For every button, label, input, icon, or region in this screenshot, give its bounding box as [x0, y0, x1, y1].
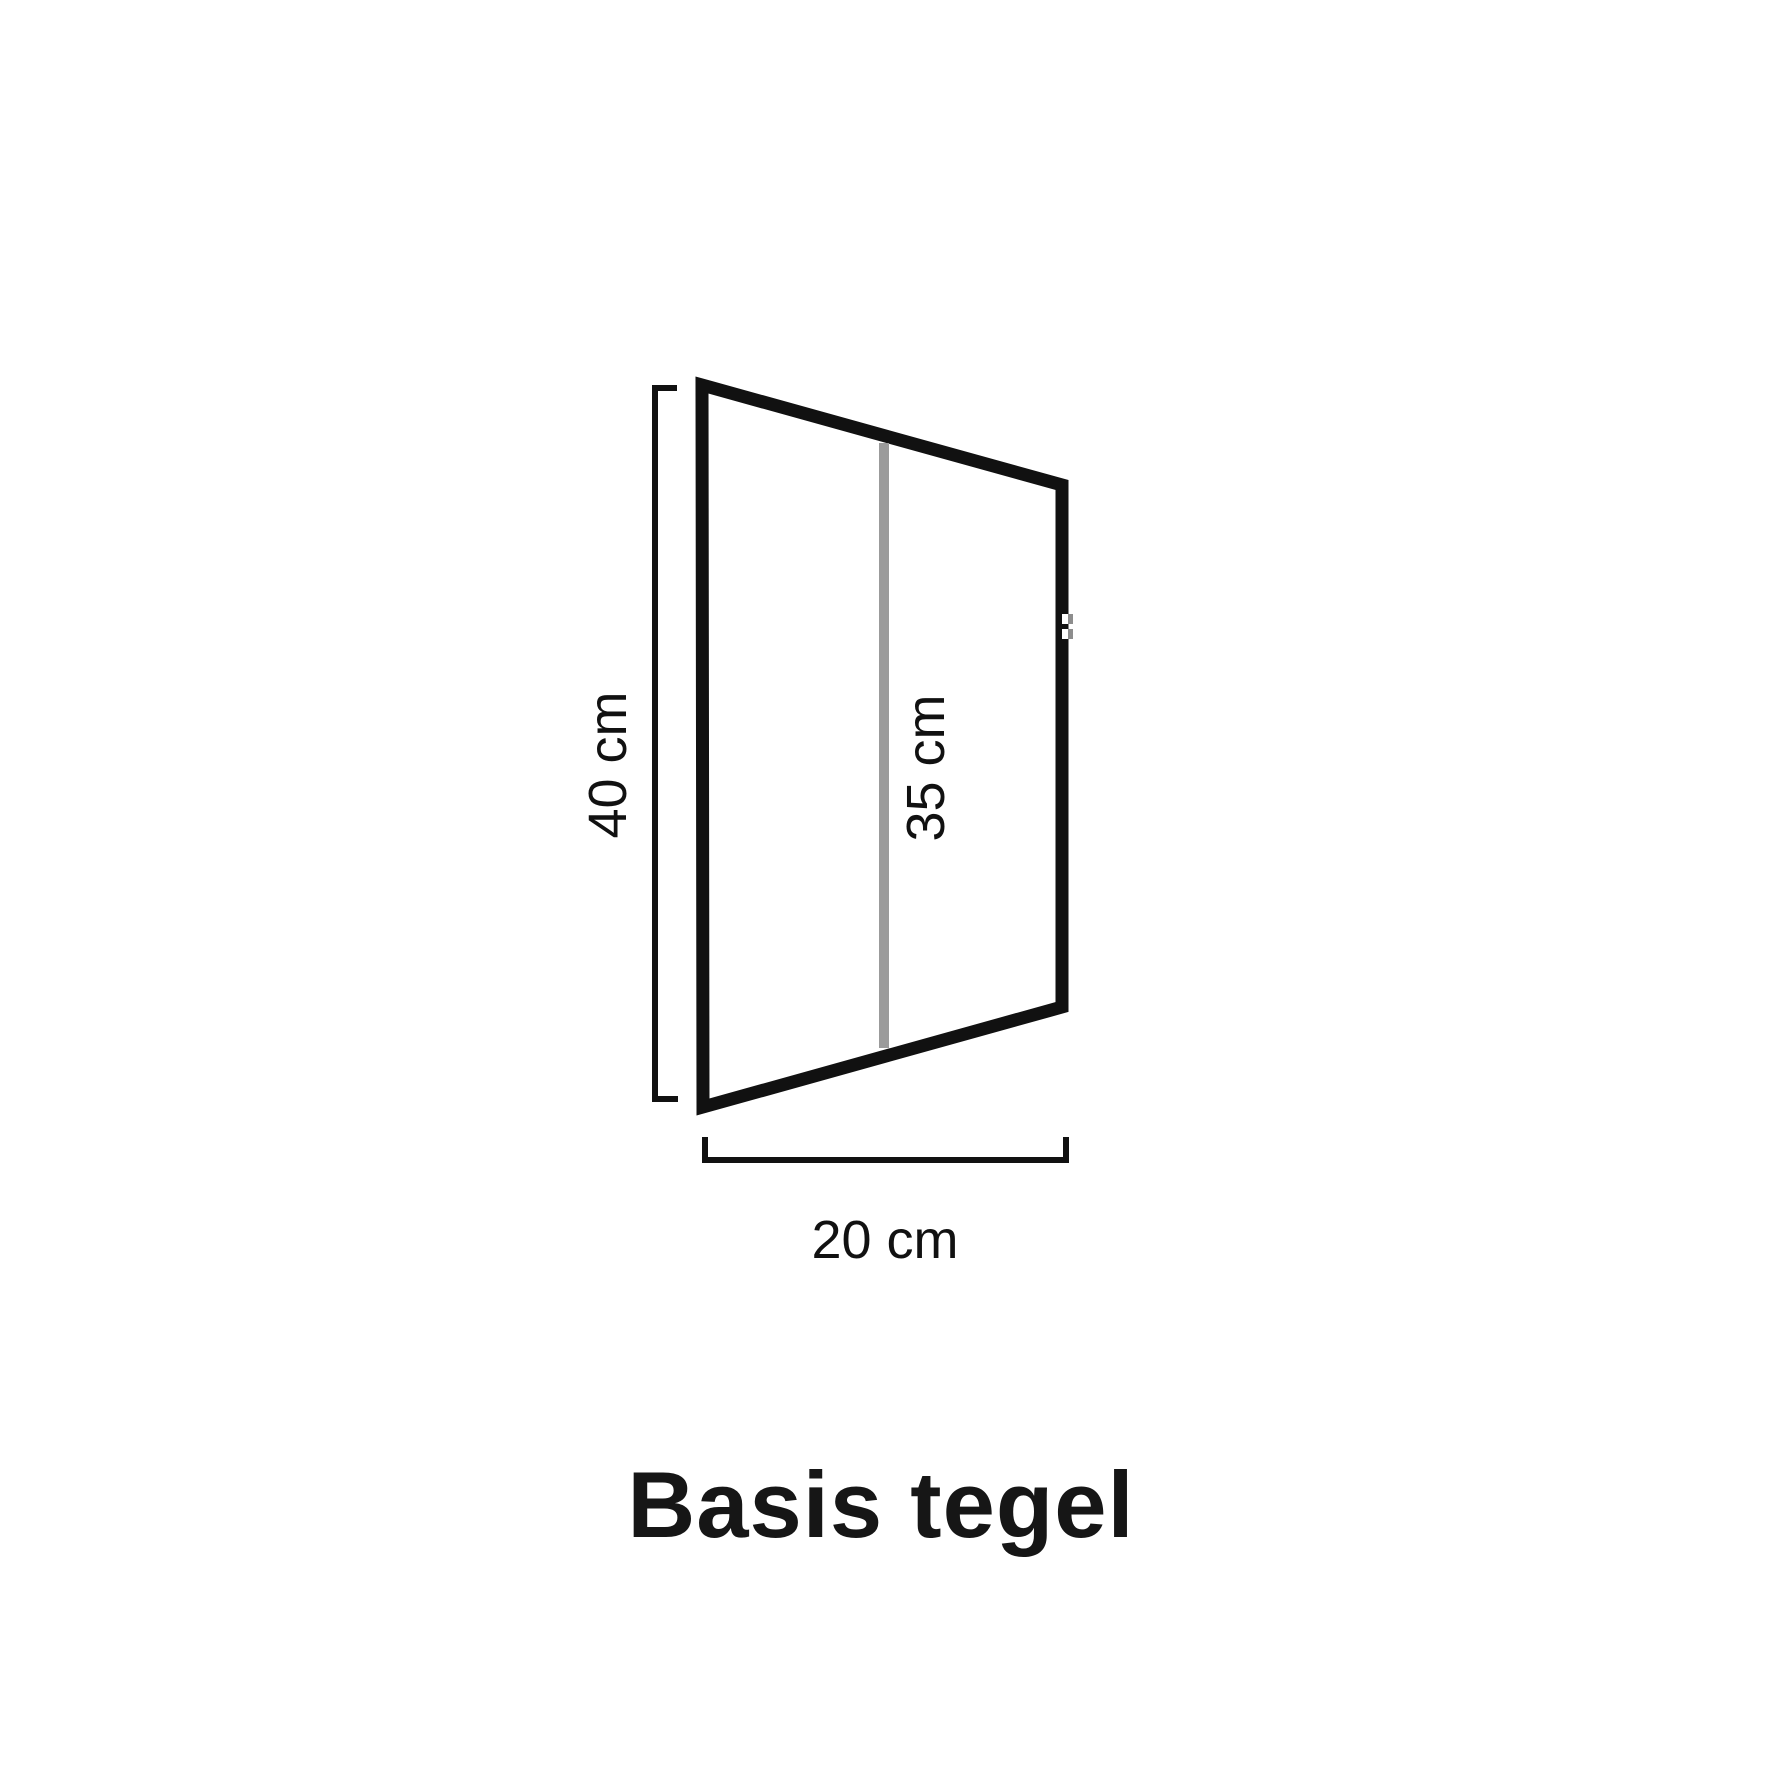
- dimension-label-left-height: 40 cm: [577, 691, 639, 838]
- tile-diagram: 40 cm 35 cm 20 cm Basis tegel: [0, 0, 1772, 1772]
- diagram-title: Basis tegel: [627, 1451, 1134, 1559]
- dimension-bracket-bottom: [705, 1137, 1066, 1160]
- dimension-label-bottom-width: 20 cm: [811, 1209, 958, 1271]
- dimension-bracket-left: [655, 388, 678, 1099]
- dimension-label-middle-height: 35 cm: [895, 694, 957, 841]
